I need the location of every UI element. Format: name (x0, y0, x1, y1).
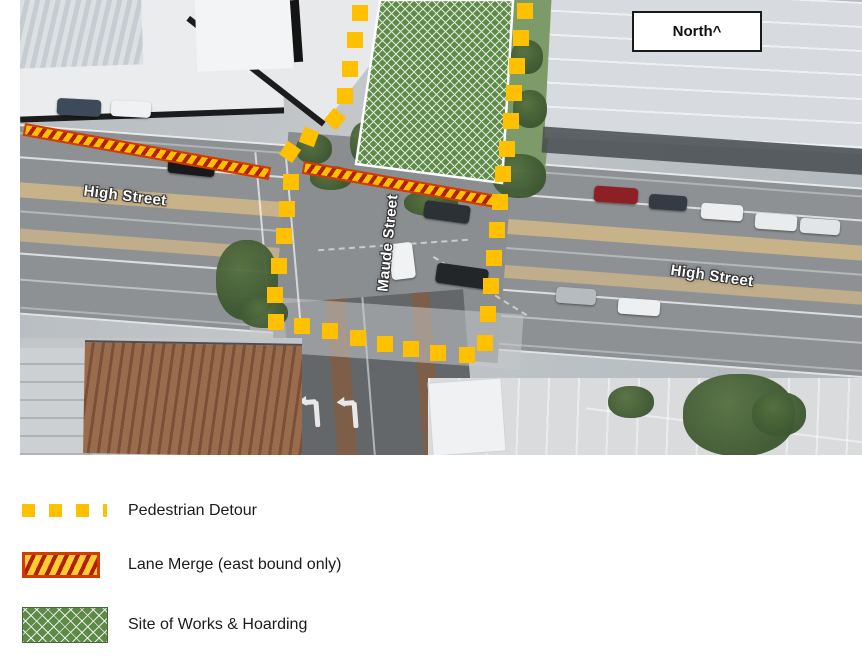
detour-square (377, 336, 393, 352)
detour-square (503, 113, 519, 129)
detour-square (499, 141, 515, 157)
detour-square (279, 201, 295, 217)
legend-label: Lane Merge (east bound only) (128, 556, 341, 574)
page-margin (0, 0, 20, 455)
detour-square (337, 88, 353, 104)
detour-square (517, 3, 533, 19)
detour-square (477, 335, 493, 351)
detour-square (495, 166, 511, 182)
traffic-management-plan: High Street Maude Street High Street Nor… (0, 0, 862, 672)
lane-merge-swatch (22, 552, 100, 578)
works-area-polygon (356, 0, 513, 183)
legend: Pedestrian Detour Lane Merge (east bound… (0, 455, 862, 672)
detour-square (322, 323, 338, 339)
site-works-swatch (22, 607, 108, 643)
detour-square (506, 85, 522, 101)
legend-item-site-works: Site of Works & Hoarding (0, 605, 862, 645)
detour-swatch-square (76, 504, 89, 517)
detour-square (342, 61, 358, 77)
detour-swatch-square (49, 504, 62, 517)
detour-square (276, 228, 292, 244)
detour-swatch-square (22, 504, 35, 517)
detour-square (347, 32, 363, 48)
detour-square (268, 314, 284, 330)
detour-square (403, 341, 419, 357)
legend-item-lane-merge: Lane Merge (east bound only) (0, 550, 862, 580)
detour-square (267, 287, 283, 303)
detour-square (352, 5, 368, 21)
north-indicator: North^ (632, 11, 762, 52)
detour-square (509, 58, 525, 74)
detour-square (483, 278, 499, 294)
detour-square (480, 306, 496, 322)
detour-square (271, 258, 287, 274)
detour-square (350, 330, 366, 346)
detour-square (492, 194, 508, 210)
detour-square (513, 30, 529, 46)
detour-square (486, 250, 502, 266)
legend-label: Pedestrian Detour (128, 502, 257, 520)
works-area-layer (0, 0, 862, 455)
north-label: North^ (673, 23, 722, 40)
detour-square (459, 347, 475, 363)
legend-item-pedestrian-detour: Pedestrian Detour (0, 500, 862, 522)
aerial-map: High Street Maude Street High Street Nor… (0, 0, 862, 455)
detour-square (294, 318, 310, 334)
detour-swatch-tick (103, 504, 107, 517)
detour-square (489, 222, 505, 238)
detour-square (430, 345, 446, 361)
legend-label: Site of Works & Hoarding (128, 616, 307, 634)
detour-square (283, 174, 299, 190)
